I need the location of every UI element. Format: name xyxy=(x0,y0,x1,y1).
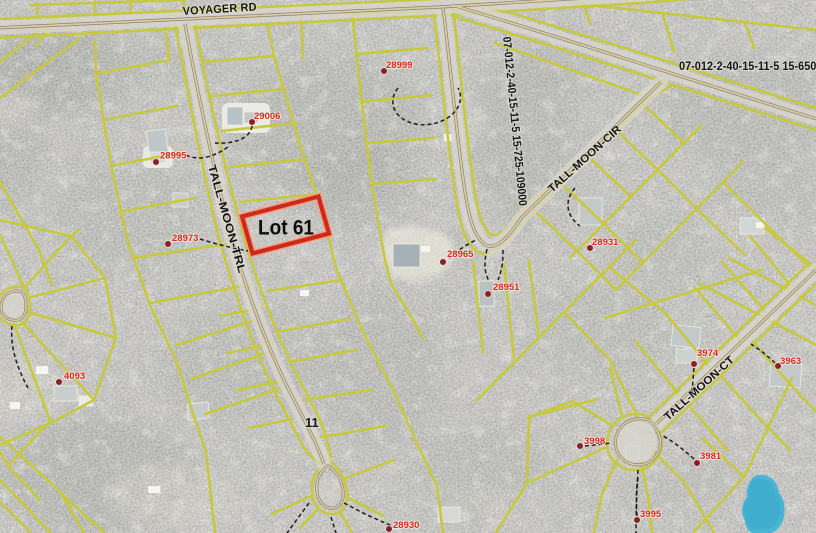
svg-text:28973: 28973 xyxy=(172,233,198,244)
svg-text:3995: 3995 xyxy=(640,509,662,520)
svg-text:28930: 28930 xyxy=(393,520,419,531)
svg-text:3998: 3998 xyxy=(584,436,605,447)
svg-text:29006: 29006 xyxy=(254,111,280,122)
svg-text:3981: 3981 xyxy=(700,451,722,462)
svg-text:28931: 28931 xyxy=(592,237,619,248)
svg-text:28951: 28951 xyxy=(493,282,520,293)
svg-text:3974: 3974 xyxy=(697,348,719,359)
svg-text:11: 11 xyxy=(305,415,319,430)
svg-text:Lot 61: Lot 61 xyxy=(258,217,314,240)
svg-text:3963: 3963 xyxy=(780,356,801,367)
svg-text:07-012-2-40-15-11-5 15-650-: 07-012-2-40-15-11-5 15-650- xyxy=(679,61,816,73)
svg-text:4093: 4093 xyxy=(64,371,85,382)
svg-text:28999: 28999 xyxy=(386,60,412,71)
svg-text:28965: 28965 xyxy=(447,249,474,260)
svg-text:28995: 28995 xyxy=(160,151,187,162)
